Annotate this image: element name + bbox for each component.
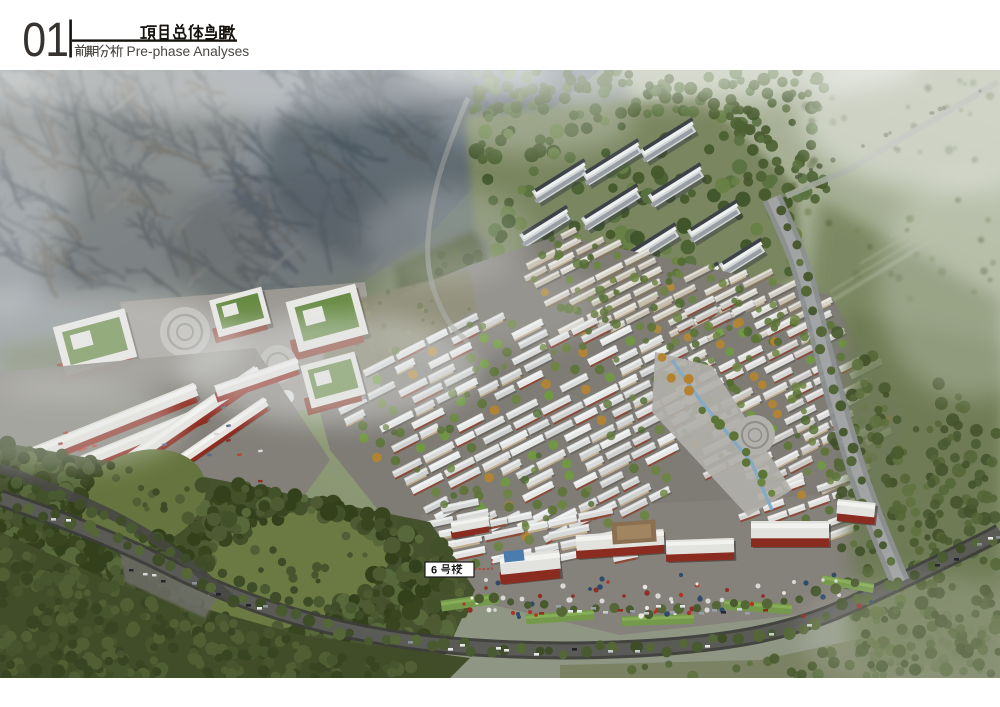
svg-text:6: 6 xyxy=(431,565,437,577)
svg-text:01: 01 xyxy=(22,12,68,66)
svg-text:Pre-phase Analyses: Pre-phase Analyses xyxy=(127,44,250,59)
